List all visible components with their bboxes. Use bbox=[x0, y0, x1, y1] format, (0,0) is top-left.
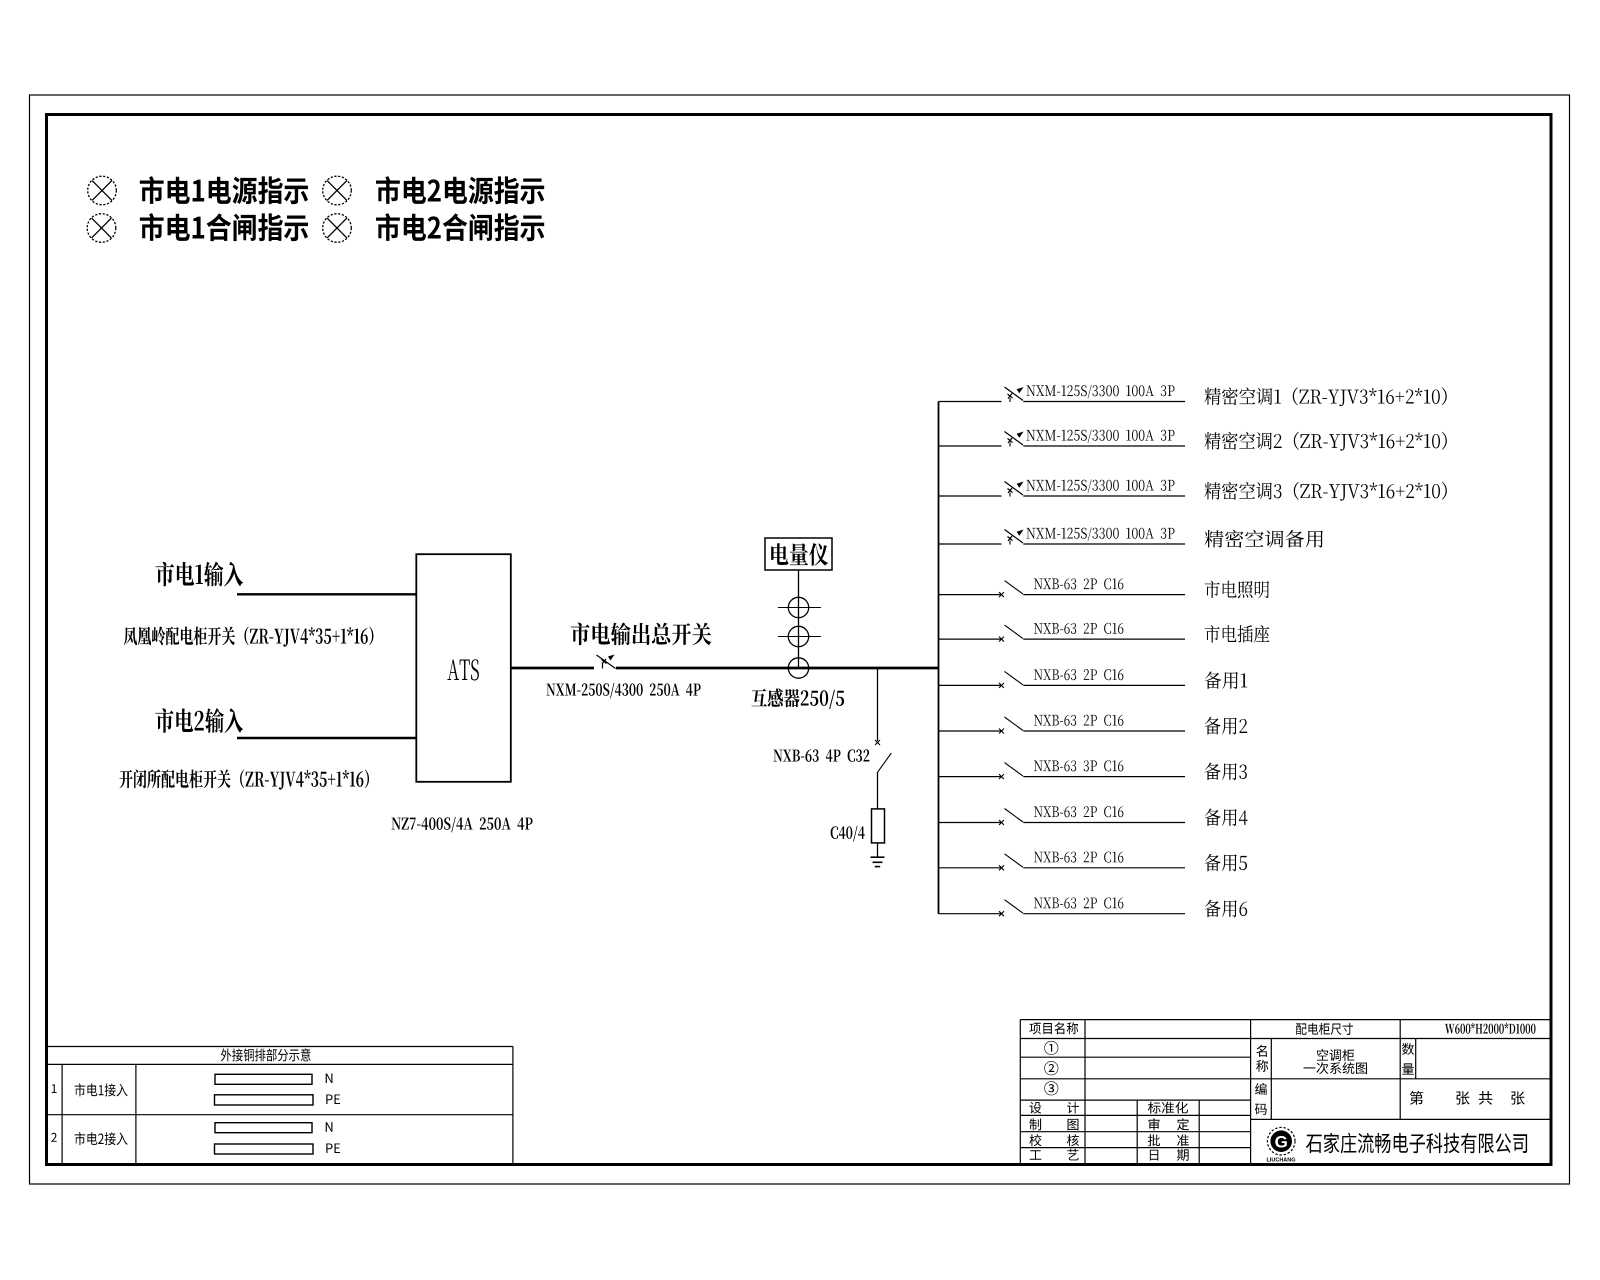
svg-text:LIUCHANG: LIUCHANG bbox=[1266, 1158, 1295, 1164]
svg-text:G: G bbox=[1275, 1132, 1288, 1151]
